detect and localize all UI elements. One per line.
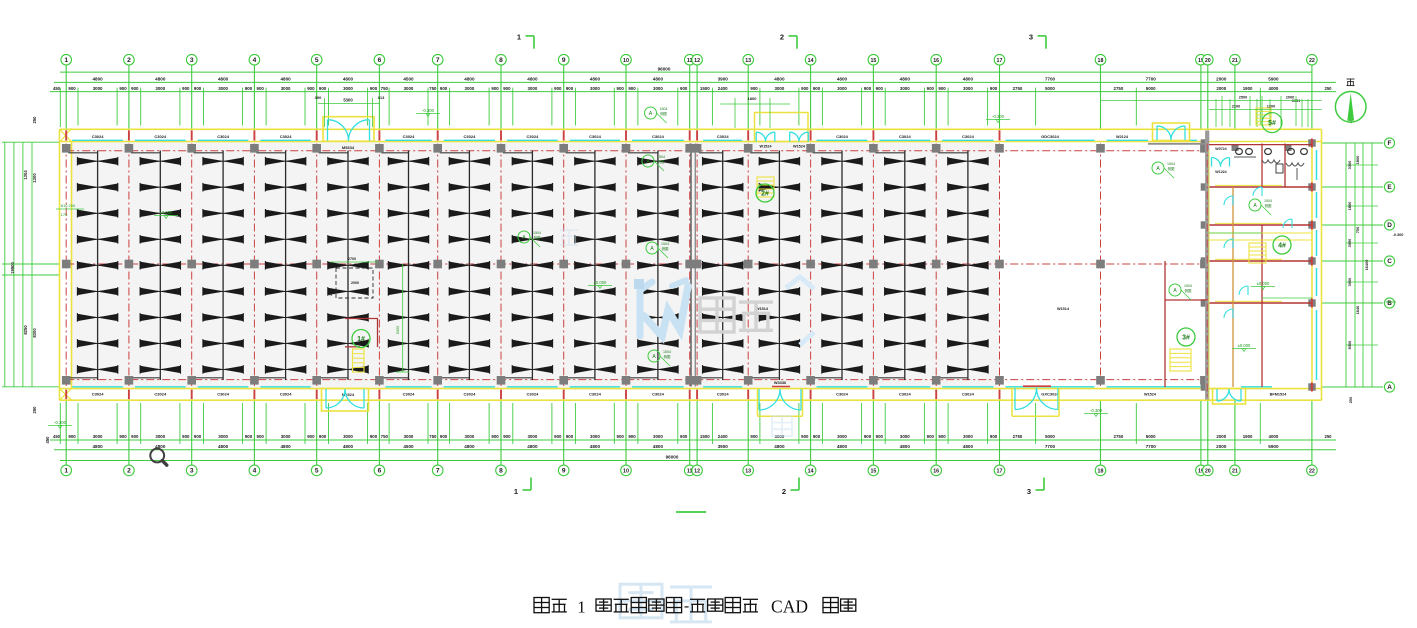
svg-text:900: 900 [864, 434, 872, 439]
svg-text:5000: 5000 [1045, 434, 1055, 439]
svg-text:10: 10 [623, 58, 629, 64]
svg-text:2000: 2000 [1216, 444, 1227, 449]
svg-text:1200: 1200 [1267, 105, 1275, 109]
svg-text:900: 900 [440, 434, 448, 439]
svg-text:2750: 2750 [1114, 434, 1124, 439]
svg-text:900: 900 [257, 434, 265, 439]
svg-text:W1524: W1524 [759, 145, 772, 149]
svg-text:900: 900 [440, 86, 448, 91]
svg-text:C3024: C3024 [154, 134, 167, 139]
svg-text:C3024: C3024 [464, 392, 477, 397]
svg-text:4800: 4800 [900, 444, 911, 449]
svg-text:900: 900 [503, 434, 511, 439]
svg-text:1: 1 [577, 598, 586, 617]
svg-text:3000: 3000 [465, 86, 475, 91]
svg-text:900: 900 [990, 86, 998, 91]
svg-text:7700: 7700 [1045, 77, 1056, 82]
svg-text:900: 900 [990, 434, 998, 439]
svg-text:900: 900 [194, 434, 202, 439]
svg-text:5: 5 [315, 468, 319, 475]
svg-text:1504: 1504 [663, 350, 671, 354]
svg-text:-0.300: -0.300 [422, 108, 435, 113]
svg-text:750: 750 [381, 86, 389, 91]
svg-text:3000: 3000 [963, 86, 973, 91]
svg-text:2625: 2625 [329, 288, 333, 296]
svg-text:4800: 4800 [527, 77, 538, 82]
svg-text:1504: 1504 [661, 242, 669, 246]
svg-text:750: 750 [429, 434, 437, 439]
svg-text:4800: 4800 [464, 77, 475, 82]
svg-text:W1514: W1514 [1057, 307, 1070, 311]
svg-text:3000: 3000 [590, 86, 600, 91]
svg-text:3300: 3300 [1347, 161, 1352, 170]
svg-text:900: 900 [194, 86, 202, 91]
svg-text:C3024: C3024 [899, 134, 912, 139]
svg-text:4800: 4800 [280, 77, 291, 82]
svg-text:18: 18 [1098, 469, 1104, 475]
svg-text:900: 900 [938, 434, 946, 439]
svg-text:450: 450 [53, 434, 61, 439]
svg-text:750: 750 [429, 86, 437, 91]
svg-text:900: 900 [876, 86, 884, 91]
svg-text:C: C [1387, 258, 1392, 265]
svg-text:250: 250 [1348, 397, 1353, 404]
svg-text:250: 250 [32, 116, 37, 124]
svg-text:3000: 3000 [343, 434, 353, 439]
svg-text:3: 3 [1029, 33, 1033, 42]
svg-text:1800: 1800 [748, 96, 758, 101]
svg-text:2000: 2000 [1216, 77, 1227, 82]
svg-text:15: 15 [870, 58, 876, 64]
svg-text:侧图: 侧图 [1168, 166, 1175, 171]
svg-text:20: 20 [1205, 58, 1211, 64]
svg-text:1300: 1300 [32, 173, 37, 183]
svg-text:W1514: W1514 [756, 307, 769, 311]
svg-text:D: D [1387, 222, 1392, 229]
svg-text:5000: 5000 [1146, 86, 1156, 91]
svg-text:900: 900 [370, 434, 378, 439]
svg-text:C3024: C3024 [154, 392, 167, 397]
svg-text:3: 3 [190, 468, 194, 475]
svg-text:900: 900 [503, 86, 511, 91]
svg-text:C3024: C3024 [403, 392, 416, 397]
svg-text:3000: 3000 [775, 86, 785, 91]
svg-text:750: 750 [381, 434, 389, 439]
svg-text:1500: 1500 [700, 434, 710, 439]
svg-text:2: 2 [782, 487, 786, 496]
svg-text:4800: 4800 [92, 444, 103, 449]
svg-text:7700: 7700 [1045, 444, 1056, 449]
svg-text:2750: 2750 [1013, 434, 1023, 439]
svg-text:3: 3 [1027, 487, 1031, 496]
svg-text:16: 16 [933, 58, 939, 64]
svg-text:96000: 96000 [658, 66, 671, 71]
svg-text:8300: 8300 [32, 328, 37, 338]
svg-text:4800: 4800 [155, 77, 166, 82]
svg-text:7: 7 [436, 468, 440, 475]
svg-text:900: 900 [617, 434, 625, 439]
svg-text:C3024: C3024 [527, 134, 540, 139]
svg-text:4800: 4800 [774, 444, 785, 449]
svg-text:3000: 3000 [155, 86, 165, 91]
svg-text:900: 900 [119, 86, 127, 91]
svg-text:1504: 1504 [1264, 199, 1272, 203]
svg-text:-0.300: -0.300 [54, 420, 67, 425]
svg-text:C3024: C3024 [652, 134, 665, 139]
svg-text:900: 900 [813, 434, 821, 439]
svg-text:4800: 4800 [963, 77, 974, 82]
svg-text:12: 12 [694, 58, 700, 64]
svg-text:20: 20 [1205, 469, 1211, 475]
svg-text:M5334: M5334 [342, 145, 355, 150]
svg-text:C3024: C3024 [836, 134, 849, 139]
svg-text:3000: 3000 [590, 434, 600, 439]
svg-text:1: 1 [517, 33, 521, 42]
svg-text:BFM1524: BFM1524 [1270, 393, 1288, 397]
svg-text:18: 18 [1098, 58, 1104, 64]
svg-text:4800: 4800 [527, 444, 538, 449]
svg-text:-: - [684, 598, 689, 615]
svg-text:8: 8 [499, 57, 503, 64]
svg-text:侧图: 侧图 [1265, 203, 1272, 208]
svg-text:810 200: 810 200 [61, 203, 76, 208]
svg-text:3000: 3000 [218, 434, 228, 439]
svg-text:C3024: C3024 [899, 392, 912, 397]
svg-text:C3024: C3024 [836, 392, 849, 397]
svg-text:900: 900 [554, 434, 562, 439]
svg-text:3000: 3000 [281, 86, 291, 91]
svg-text:3000: 3000 [404, 434, 414, 439]
svg-text:C3024: C3024 [403, 134, 416, 139]
svg-text:C3024: C3024 [280, 134, 293, 139]
svg-text:2: 2 [127, 57, 131, 64]
svg-text:1: 1 [514, 487, 518, 496]
svg-text:W1224: W1224 [1215, 170, 1226, 174]
svg-text:1800: 1800 [1347, 202, 1352, 211]
svg-text:3000: 3000 [837, 434, 847, 439]
svg-text:1500: 1500 [700, 86, 710, 91]
svg-text:12: 12 [694, 469, 700, 475]
svg-text:C3024: C3024 [717, 134, 730, 139]
svg-text:900: 900 [566, 86, 574, 91]
svg-text:900: 900 [617, 86, 625, 91]
svg-text:900: 900 [370, 86, 378, 91]
svg-text:4800: 4800 [590, 444, 601, 449]
svg-text:-0.300: -0.300 [992, 114, 1005, 119]
svg-text:900: 900 [245, 86, 253, 91]
svg-text:170: 170 [61, 212, 68, 217]
svg-text:E: E [1387, 184, 1392, 191]
svg-text:900: 900 [319, 434, 327, 439]
svg-text:3000: 3000 [281, 434, 291, 439]
svg-text:2700: 2700 [348, 257, 356, 261]
svg-text:1: 1 [64, 57, 68, 64]
svg-text:C3024: C3024 [92, 392, 105, 397]
svg-text:2400: 2400 [718, 434, 728, 439]
svg-text:2400: 2400 [718, 86, 728, 91]
svg-text:1800: 1800 [1355, 156, 1360, 165]
svg-text:3000: 3000 [93, 86, 103, 91]
svg-text:C3024: C3024 [962, 134, 975, 139]
svg-text:侧图: 侧图 [1185, 288, 1192, 293]
svg-text:2750: 2750 [1114, 86, 1124, 91]
svg-text:2000: 2000 [351, 281, 359, 285]
svg-text:900: 900 [680, 86, 688, 91]
svg-text:3950: 3950 [1347, 239, 1352, 248]
svg-text:10: 10 [623, 469, 629, 475]
svg-text:3000: 3000 [93, 434, 103, 439]
svg-text:4: 4 [253, 57, 257, 64]
svg-text:14: 14 [808, 58, 814, 64]
svg-text:3000: 3000 [465, 434, 475, 439]
svg-text:3000: 3000 [528, 86, 538, 91]
svg-text:900: 900 [750, 434, 758, 439]
svg-text:900: 900 [245, 434, 253, 439]
svg-text:侧图: 侧图 [534, 235, 541, 240]
svg-text:±0.000: ±0.000 [160, 210, 173, 215]
svg-text:3000: 3000 [343, 86, 353, 91]
svg-text:4800: 4800 [218, 444, 229, 449]
svg-text:2100: 2100 [1232, 105, 1240, 109]
svg-text:2750: 2750 [1013, 86, 1023, 91]
svg-text:CAD: CAD [771, 597, 808, 617]
svg-text:900: 900 [813, 86, 821, 91]
svg-text:3: 3 [190, 57, 194, 64]
svg-text:4#: 4# [1278, 243, 1286, 250]
svg-text:17: 17 [997, 58, 1003, 64]
svg-text:390: 390 [315, 95, 322, 100]
svg-text:2000: 2000 [1286, 96, 1294, 100]
svg-text:4800: 4800 [343, 77, 354, 82]
svg-text:900: 900 [182, 86, 190, 91]
svg-text:17: 17 [997, 469, 1003, 475]
svg-text:750: 750 [1355, 227, 1360, 234]
svg-text:250: 250 [1325, 434, 1333, 439]
svg-text:C3024: C3024 [962, 392, 975, 397]
svg-text:侧图: 侧图 [664, 354, 671, 359]
svg-text:4000: 4000 [1269, 434, 1279, 439]
svg-text:6: 6 [378, 57, 382, 64]
svg-text:3000: 3000 [653, 434, 663, 439]
svg-text:2: 2 [127, 468, 131, 475]
svg-text:2000: 2000 [1216, 434, 1226, 439]
svg-text:7: 7 [436, 57, 440, 64]
svg-text:7700: 7700 [1146, 77, 1157, 82]
svg-text:6: 6 [378, 468, 382, 475]
svg-text:900: 900 [257, 86, 265, 91]
svg-text:16: 16 [933, 469, 939, 475]
svg-text:1504: 1504 [660, 107, 668, 111]
svg-text:GDC3024: GDC3024 [1041, 134, 1060, 139]
svg-text:13: 13 [745, 58, 751, 64]
svg-text:9: 9 [562, 468, 566, 475]
svg-text:3000: 3000 [404, 86, 414, 91]
svg-text:W0724: W0724 [1215, 147, 1226, 151]
svg-text:-0.300: -0.300 [1090, 408, 1103, 413]
svg-text:21: 21 [1232, 469, 1238, 475]
svg-text:3000: 3000 [653, 86, 663, 91]
svg-text:14: 14 [808, 469, 814, 475]
svg-text:900: 900 [628, 86, 636, 91]
svg-text:900: 900 [307, 434, 315, 439]
svg-text:A: A [1387, 384, 1392, 391]
svg-text:5900: 5900 [1268, 444, 1279, 449]
svg-text:900: 900 [750, 86, 758, 91]
svg-text:900: 900 [801, 86, 809, 91]
svg-text:313: 313 [378, 95, 385, 100]
svg-text:450: 450 [53, 86, 61, 91]
svg-text:C3024: C3024 [217, 392, 230, 397]
svg-text:C3024: C3024 [280, 392, 293, 397]
svg-text:侧图: 侧图 [660, 111, 667, 116]
svg-text:4800: 4800 [653, 444, 664, 449]
svg-text:2#: 2# [761, 191, 769, 198]
svg-text:侧图: 侧图 [658, 159, 665, 164]
svg-text:1504: 1504 [533, 231, 541, 235]
svg-text:5300: 5300 [396, 326, 400, 334]
svg-text:2500: 2500 [1239, 96, 1247, 100]
svg-text:900: 900 [491, 86, 499, 91]
svg-text:5300: 5300 [343, 98, 353, 103]
svg-text:900: 900 [927, 434, 935, 439]
svg-text:W3336: W3336 [774, 380, 787, 385]
svg-text:±0.000: ±0.000 [594, 280, 607, 285]
svg-text:4: 4 [253, 468, 257, 475]
svg-text:4800: 4800 [963, 444, 974, 449]
svg-text:900: 900 [307, 86, 315, 91]
svg-text:900: 900 [491, 434, 499, 439]
svg-text:5: 5 [315, 57, 319, 64]
svg-text:900: 900 [680, 434, 688, 439]
svg-text:8250: 8250 [23, 325, 28, 335]
svg-text:4800: 4800 [653, 77, 664, 82]
svg-text:GXC3024: GXC3024 [1041, 392, 1059, 397]
svg-text:3000: 3000 [900, 434, 910, 439]
svg-text:9: 9 [562, 57, 566, 64]
svg-text:W1524: W1524 [793, 145, 806, 149]
svg-text:1: 1 [64, 468, 68, 475]
svg-text:4800: 4800 [464, 444, 475, 449]
svg-text:W1524: W1524 [1144, 393, 1157, 397]
svg-text:900: 900 [131, 434, 139, 439]
svg-text:4800: 4800 [590, 77, 601, 82]
svg-text:3000: 3000 [528, 434, 538, 439]
svg-text:5000: 5000 [1146, 434, 1156, 439]
svg-text:22: 22 [1309, 469, 1315, 475]
svg-text:C3024: C3024 [589, 134, 602, 139]
svg-text:3000: 3000 [900, 86, 910, 91]
svg-text:C3024: C3024 [652, 392, 665, 397]
svg-text:900: 900 [554, 86, 562, 91]
svg-text:1900: 1900 [1243, 86, 1253, 91]
svg-text:4800: 4800 [92, 77, 103, 82]
svg-text:1504: 1504 [1167, 162, 1175, 166]
svg-text:3900: 3900 [718, 77, 729, 82]
svg-text:900: 900 [182, 434, 190, 439]
svg-text:C3024: C3024 [92, 134, 105, 139]
svg-text:1900: 1900 [1243, 434, 1253, 439]
svg-text:900: 900 [938, 86, 946, 91]
svg-text:C3024: C3024 [464, 134, 477, 139]
svg-text:±0.000: ±0.000 [1238, 343, 1251, 348]
svg-text:900: 900 [119, 434, 127, 439]
svg-text:4800: 4800 [837, 444, 848, 449]
svg-text:3000: 3000 [837, 86, 847, 91]
svg-text:22: 22 [1309, 58, 1315, 64]
svg-text:96000: 96000 [666, 455, 679, 460]
svg-text:900: 900 [131, 86, 139, 91]
svg-text:3900: 3900 [718, 444, 729, 449]
svg-text:7700: 7700 [1146, 444, 1157, 449]
svg-text:8300: 8300 [1347, 341, 1352, 350]
svg-text:900: 900 [628, 434, 636, 439]
svg-text:900: 900 [68, 86, 76, 91]
svg-text:5#: 5# [1268, 120, 1276, 127]
svg-text:450: 450 [45, 436, 50, 444]
svg-text:C3024: C3024 [717, 392, 730, 397]
svg-text:5900: 5900 [1268, 77, 1279, 82]
svg-text:250: 250 [1325, 86, 1333, 91]
svg-text:±0.000: ±0.000 [1257, 281, 1270, 286]
svg-text:900: 900 [927, 86, 935, 91]
svg-text:4800: 4800 [900, 77, 911, 82]
svg-text:C3024: C3024 [527, 392, 540, 397]
svg-text:4800: 4800 [280, 444, 291, 449]
svg-text:1#: 1# [357, 336, 365, 343]
svg-text:900: 900 [319, 86, 327, 91]
svg-text:4000: 4000 [1269, 86, 1279, 91]
svg-text:4800: 4800 [774, 77, 785, 82]
svg-text:W2124: W2124 [1116, 135, 1129, 139]
svg-text:13: 13 [745, 469, 751, 475]
svg-text:19900: 19900 [10, 262, 15, 274]
svg-text:250: 250 [32, 406, 37, 414]
svg-text:-0.300: -0.300 [1393, 233, 1404, 237]
svg-text:5000: 5000 [1045, 86, 1055, 91]
svg-text:2: 2 [780, 33, 784, 42]
svg-text:1640: 1640 [1355, 306, 1360, 315]
svg-text:4500: 4500 [403, 77, 414, 82]
svg-text:4800: 4800 [837, 77, 848, 82]
svg-text:1504: 1504 [1184, 284, 1192, 288]
svg-text:3#: 3# [1182, 335, 1190, 342]
svg-text:1504: 1504 [657, 155, 665, 159]
svg-text:3000: 3000 [218, 86, 228, 91]
svg-text:侧图: 侧图 [662, 246, 669, 251]
svg-text:15: 15 [870, 469, 876, 475]
svg-text:900: 900 [801, 434, 809, 439]
svg-text:900: 900 [566, 434, 574, 439]
svg-text:2000: 2000 [1216, 86, 1226, 91]
svg-text:16400: 16400 [1364, 260, 1369, 271]
svg-text:4800: 4800 [218, 77, 229, 82]
svg-text:1304: 1304 [23, 170, 28, 180]
svg-text:3000: 3000 [963, 434, 973, 439]
svg-text:4800: 4800 [343, 444, 354, 449]
svg-text:B: B [1387, 300, 1392, 307]
svg-text:4500: 4500 [403, 444, 414, 449]
svg-text:21: 21 [1232, 58, 1238, 64]
svg-text:900: 900 [876, 434, 884, 439]
svg-text:8: 8 [499, 468, 503, 475]
svg-text:C3024: C3024 [589, 392, 602, 397]
svg-text:900: 900 [68, 434, 76, 439]
svg-text:F: F [1388, 140, 1392, 147]
svg-text:C3024: C3024 [217, 134, 230, 139]
svg-text:3000: 3000 [155, 434, 165, 439]
svg-text:3000: 3000 [1347, 278, 1352, 287]
svg-text:900: 900 [864, 86, 872, 91]
